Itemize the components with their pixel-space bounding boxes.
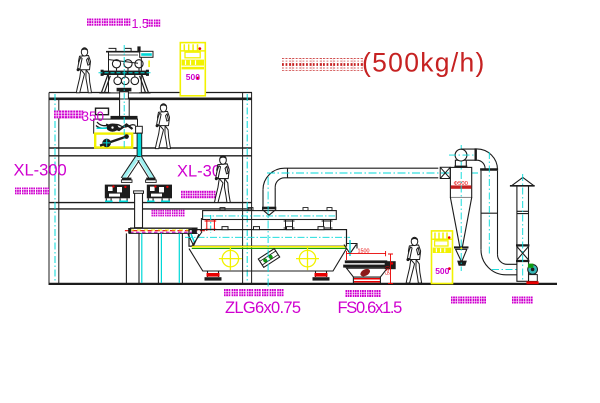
svg-text:XL-300: XL-300 [14,162,67,180]
svg-text:Φ500: Φ500 [454,181,468,187]
svg-text:1.5: 1.5 [132,17,149,31]
svg-text:(500kg/h): (500kg/h) [362,48,486,78]
svg-text:540: 540 [385,266,391,275]
svg-text:500: 500 [435,266,449,276]
svg-text:ZLG6x0.75: ZLG6x0.75 [225,299,301,317]
svg-text:1500: 1500 [358,248,370,254]
svg-text:350: 350 [82,109,105,124]
svg-text:500: 500 [186,72,200,82]
svg-text:FS0.6x1.5: FS0.6x1.5 [338,299,403,317]
